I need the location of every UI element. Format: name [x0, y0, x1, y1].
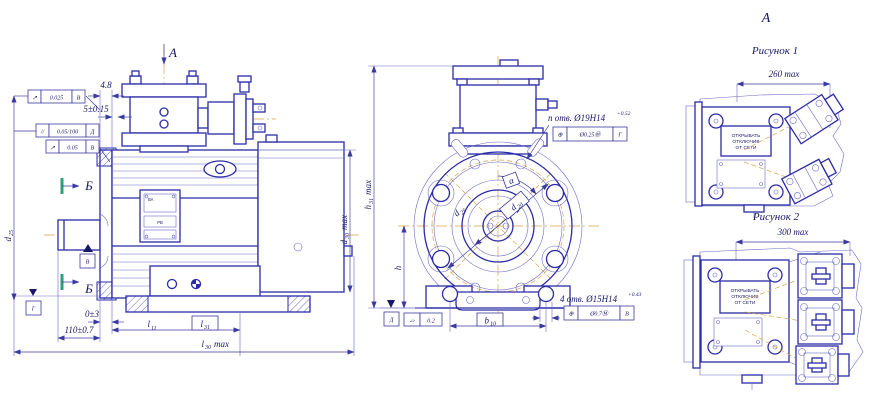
dim-h: h [393, 265, 403, 270]
runout-top-datum: В [77, 96, 81, 102]
runout-bottom-value: 0.05 [67, 146, 78, 152]
flatness-frame: ▱ 0.2 [404, 313, 442, 326]
terminal-box-side [122, 71, 265, 152]
dim-flange-thickness: 4.8 [100, 80, 112, 90]
view-a-figures: А Рисунок 1 260 max ОТКРЫВАТЬ ОТКЛЮЧИВ О… [684, 11, 863, 390]
figure1-width-dim: 260 max [769, 69, 800, 79]
figure1-drawing: ОТКРЫВАТЬ ОТКЛЮЧИВ ОТ СЕТИ [686, 89, 846, 218]
dim-zero: 0±3 [85, 309, 99, 319]
cable-gland-side [198, 76, 265, 144]
dim-suffix: max [363, 180, 373, 195]
dim-d20-boxed: d 20 [499, 191, 530, 220]
flange-holes-tolerance: +0.52 [617, 111, 631, 117]
flange-holes-note: n отв. Ø19H14 +0.52 ⊕ Ø0.25Ⓜ Г [527, 111, 631, 159]
figure1-title: Рисунок 1 [751, 45, 798, 57]
dim-sub: 25 [9, 230, 15, 236]
view-a-label: А [168, 45, 177, 60]
figure2-title: Рисунок 2 [752, 211, 800, 223]
cable-gland-3 [796, 346, 849, 384]
position-value: Ø0.7Ⓜ [589, 310, 609, 318]
dim-base: h [393, 265, 403, 270]
figure2-width-dim: 300 max [777, 227, 809, 237]
dim-sub: 11 [151, 326, 157, 332]
nameplate-series: ВА [148, 197, 154, 202]
dim-d25-side: d 25 [3, 230, 15, 242]
datum-triangle [387, 300, 395, 308]
dim-h31-max: h 31 max [363, 180, 375, 210]
feet-front [415, 286, 580, 310]
dim-sub: 10 [490, 322, 496, 328]
warning-line1: ОТКРЫВАТЬ [732, 133, 761, 139]
motor-nameplate: ВА РВ [140, 190, 180, 242]
dim-sub: 30 [345, 233, 351, 240]
dim-sub: 30 [204, 345, 211, 351]
warning-line3: ОТ СЕТИ [734, 300, 756, 306]
dim-alpha: α [502, 172, 519, 188]
drawing-canvas: ВА РВ [0, 0, 876, 412]
dim-sub: 31 [369, 198, 375, 205]
datum-v-label: В [86, 260, 90, 266]
runout-top-value: 0.025 [50, 96, 64, 102]
datum-g-label: Г [31, 307, 36, 313]
cable-gland-1 [798, 254, 854, 298]
warning-line3: ОТ СЕТИ [735, 145, 757, 151]
view-a-arrow: А [164, 44, 177, 64]
dim-base: d [339, 240, 349, 245]
dim-suffix: max [339, 215, 349, 230]
tolerance-frame-parallelism: // 0.05/100 Д [14, 124, 99, 137]
dim-shaft-length: 110±0.7 [64, 325, 94, 335]
section-b-bottom-label: Б [84, 281, 93, 296]
parallelism-value: 0.05/100 [57, 130, 78, 136]
foot-holes-tolerance: +0.43 [628, 291, 642, 298]
position-datum: Г [617, 133, 622, 139]
flange-holes-text: n отв. Ø19H14 [548, 113, 606, 123]
dim-base: d [3, 237, 13, 242]
section-b-top-label: Б [84, 178, 93, 193]
dim-l30-max: l 30 max [201, 339, 229, 351]
datum-triangle [29, 289, 37, 296]
dim-d30-max: d 30 max [339, 215, 351, 245]
lifting-eye [204, 161, 236, 177]
warning-line2: ОТКЛЮЧИВ [731, 294, 758, 300]
dim-b10-boxed: b 10 [477, 313, 503, 328]
side-view: ВА РВ [3, 44, 360, 356]
warning-plate: ОТКРЫВАТЬ ОТКЛЮЧИВ ОТ СЕТИ [721, 126, 771, 156]
cable-gland-1 [785, 89, 847, 144]
foot-holes-text: 4 отв. Ø15H14 [560, 294, 618, 304]
runout-bottom-datum: В [91, 146, 95, 152]
nameplate-marking: РВ [157, 220, 163, 225]
figure2-drawing: ОТКРЫВАТЬ ОТКЛЮЧИВ ОТ СЕТИ [684, 248, 863, 390]
warning-plate: ОТКРЫВАТЬ ОТКЛЮЧИВ ОТ СЕТИ [720, 281, 770, 313]
dim-spigot: 5±0.15 [83, 104, 109, 114]
view-a-right-label: А [761, 11, 771, 26]
dim-suffix: max [214, 339, 229, 349]
engineering-drawing-sheet: ВА РВ [0, 0, 876, 412]
dim-base: h [363, 205, 373, 210]
cable-gland-2 [798, 300, 854, 344]
front-view: h 31 max h d 25 d 20 α [363, 56, 642, 332]
warning-line1: ОТКРЫВАТЬ [731, 288, 760, 294]
rear-box [258, 135, 352, 292]
dim-sub: 31 [203, 325, 210, 331]
dim-l31-boxed: l 31 [192, 316, 218, 331]
position-value: Ø0.25Ⓜ [579, 131, 602, 139]
dim-base: b [485, 316, 490, 326]
shaft [58, 220, 100, 250]
dim-d25-front: d 25 [452, 203, 469, 220]
position-datum: В [625, 312, 629, 318]
flatness-value: 0.2 [427, 319, 435, 325]
